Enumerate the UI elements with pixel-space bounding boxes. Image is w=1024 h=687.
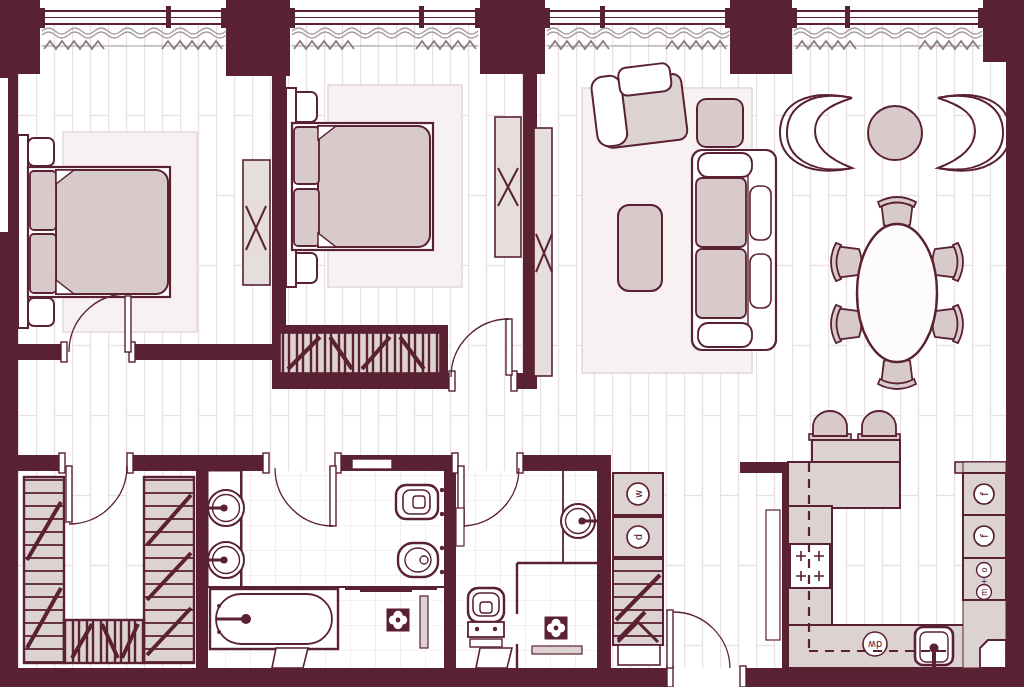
door-jamb [263,453,269,473]
fridge-label: f [979,492,990,496]
nightstand [28,298,54,326]
fridge: f [963,473,1006,515]
pillow [294,127,319,184]
wall-br1-b [133,344,272,360]
partition-br1-br2 [272,74,286,360]
door-jamb [59,453,65,473]
pillow [294,189,319,246]
mullion [166,6,171,28]
microwave-label: m [980,588,989,596]
utility-column: w d [613,473,663,665]
partition-bath2-utility [597,455,611,668]
shower-bench [532,646,582,654]
washer-label: w [633,490,644,498]
floor-drain-icon [545,617,567,639]
door-jamb [61,342,67,362]
floor-drain-icon [387,609,409,631]
towel-niche [352,459,392,469]
freezer-label: f [979,534,990,538]
entrance-opening [673,668,740,687]
dryer-label: d [633,534,644,540]
seat-cushion [696,249,746,318]
wall-vent [476,648,512,668]
bottom-wall-right [740,668,1024,687]
door-jamb [517,453,523,473]
peninsula-lip [812,440,900,463]
wall-hung-toilet [396,485,444,519]
wall-lower-d [519,455,604,471]
door-jamb [740,666,746,687]
door-jamb [452,453,458,473]
door-jamb [127,453,133,473]
dishwasher: dw [863,632,887,656]
tv-panel-bedroom1 [243,160,270,285]
freezer: f [963,515,1006,558]
door-leaf [66,466,72,522]
floor-plan-canvas: w d [0,0,1024,687]
tub-faucet [241,614,251,624]
wall-br1-a [18,344,63,360]
floor-plan-drawing: w d [0,0,1024,687]
dining-table [857,224,937,362]
wall-niche [456,508,464,546]
pillow [30,234,56,293]
door-leaf [667,610,673,668]
wardrobe-bedroom2 [272,325,448,381]
wall-lower-a [18,455,63,471]
door-leaf [125,296,131,352]
appliance-column: f f o + m [963,462,1006,668]
double-bed [292,123,433,250]
washer: w [613,473,663,515]
hall-niche [766,510,780,640]
headboard [18,135,28,328]
left-wall-niche [0,78,8,232]
nightstand [28,138,54,166]
door-leaf [506,319,512,375]
bottom-wall-left [0,668,673,687]
mullion [419,6,424,28]
oven-microwave: o + m [963,558,1006,600]
closet-unit-bottom [64,620,144,663]
kitchen-sink [915,627,953,668]
mattress [56,170,168,294]
arm-cushion [698,323,752,347]
pier-4 [730,0,792,74]
shower-bench [420,596,428,648]
linen-cabinet [613,559,663,665]
pier-2 [226,0,290,76]
pier-3 [480,0,545,74]
partition-bath1-bath2 [444,455,456,668]
closet-unit-left [24,477,64,663]
double-bed [28,167,170,297]
dryer: d [613,517,663,557]
door-leaf [330,466,336,526]
sofa [692,150,776,350]
mullion [845,6,850,28]
door-jamb [449,371,455,391]
wall-stub-kitchen [740,462,792,473]
tv-panel-bedroom2 [495,117,521,257]
dishwasher-label: dw [868,639,883,650]
mullion [600,6,605,28]
pillow [30,171,56,230]
right-wall [1006,0,1024,687]
arm-cushion [698,153,752,177]
peninsula-counter [788,462,900,508]
coffee-table [618,205,662,291]
seat-cushion [696,178,746,247]
wall-vent [272,648,308,668]
back-pillow [750,186,771,240]
door-jamb [667,666,673,687]
back-pillow [750,254,771,308]
shower-glass [360,586,412,592]
closet-unit-right [144,477,194,663]
side-table [868,106,922,160]
bathtub [210,589,338,649]
vanity-sink [208,542,244,578]
tv-panel-living [534,128,552,376]
oven-label: o [980,567,989,572]
partition-closet-bath1 [196,455,208,668]
ottoman [697,99,743,147]
mattress [318,126,430,247]
vanity-sink [208,490,244,526]
